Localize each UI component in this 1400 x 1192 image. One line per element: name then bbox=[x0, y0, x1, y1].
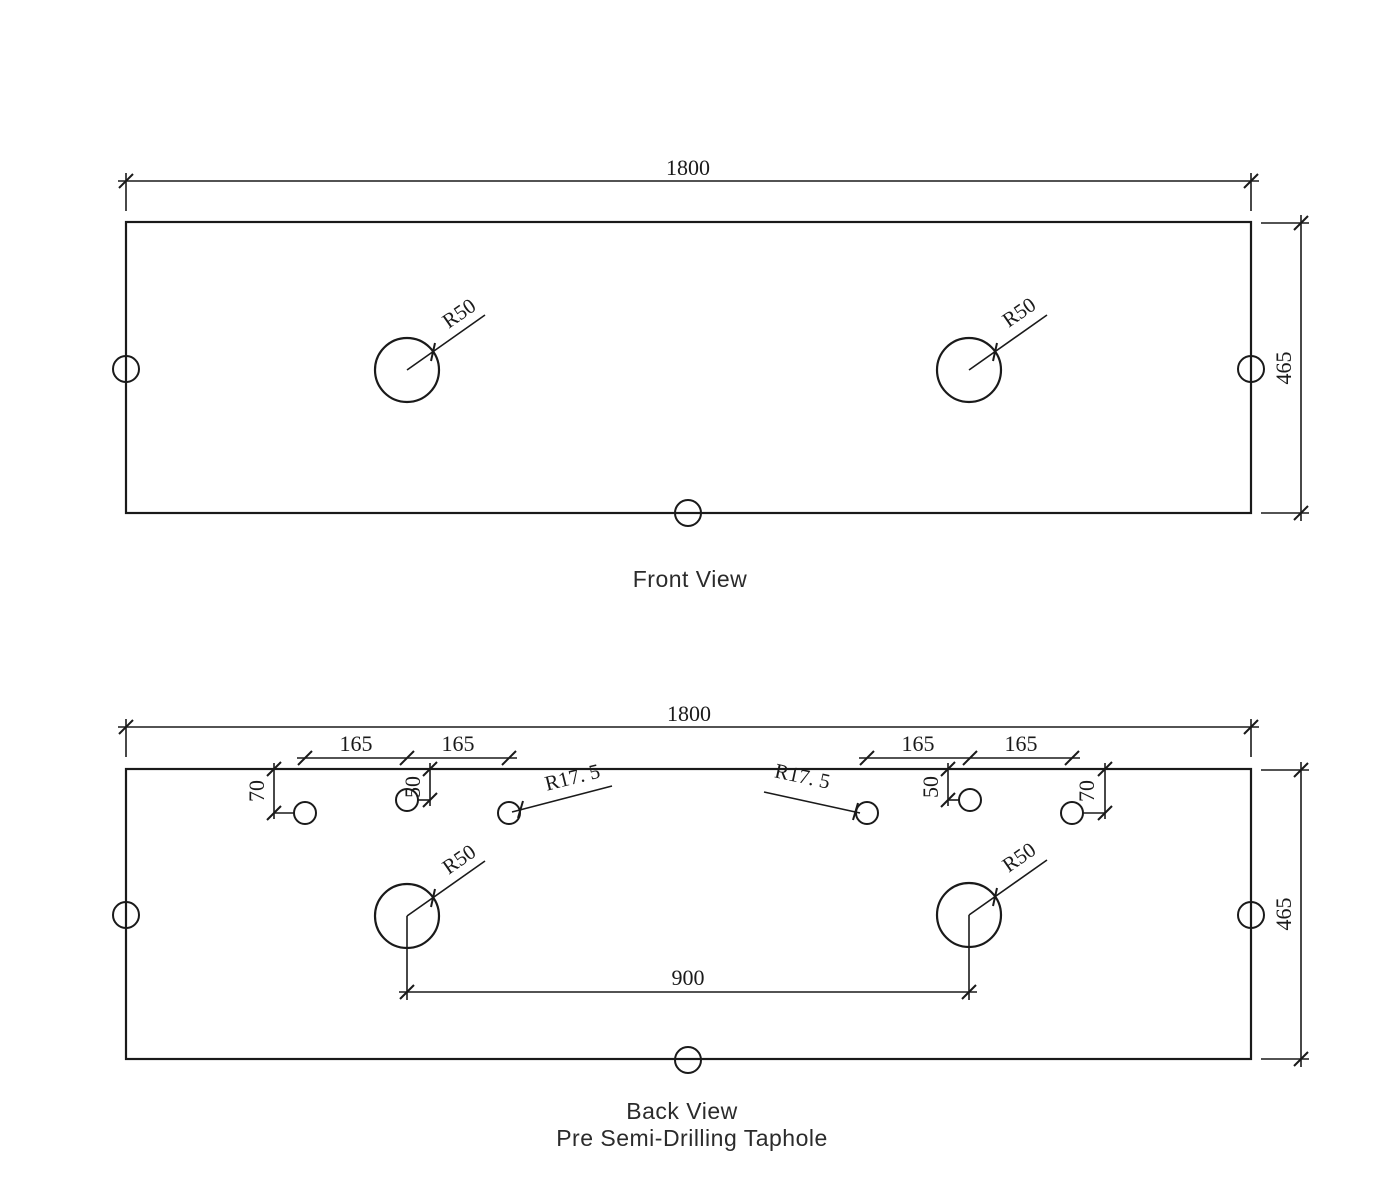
taphole-spacing-label-b: 165 bbox=[442, 731, 475, 756]
back-spacing-dimension: 900 bbox=[399, 915, 977, 1000]
taphole-spacing-label-a: 165 bbox=[902, 731, 935, 756]
back-right-radius-callout: R50 bbox=[969, 837, 1047, 915]
taphole-depth-50-label: 50 bbox=[918, 776, 943, 798]
back-left-radius-callout: R50 bbox=[407, 839, 485, 916]
taphole-depth-70-dimension: 70 bbox=[244, 762, 294, 820]
front-view-title: Front View bbox=[633, 566, 748, 592]
front-width-dimension: 1800 bbox=[118, 155, 1259, 211]
taphole-spacing-dimension: 165 165 bbox=[297, 731, 517, 765]
front-left-radius-callout: R50 bbox=[407, 293, 485, 370]
technical-drawing-canvas: 1800 465 R50 bbox=[0, 0, 1400, 1192]
back-left-radius-label: R50 bbox=[438, 839, 480, 879]
front-height-dimension: 465 bbox=[1261, 215, 1309, 521]
taphole-depth-70-label: 70 bbox=[244, 780, 269, 802]
taphole-depth-70-label: 70 bbox=[1074, 780, 1099, 802]
taphole-spacing-dimension: 165 165 bbox=[859, 731, 1080, 765]
back-view-title: Back View bbox=[626, 1098, 737, 1124]
taphole-spacing-label-a: 165 bbox=[340, 731, 373, 756]
front-edge-marks bbox=[113, 356, 1264, 526]
back-width-label: 1800 bbox=[667, 701, 711, 726]
taphole bbox=[498, 802, 520, 824]
taphole bbox=[1061, 802, 1083, 824]
back-width-dimension: 1800 bbox=[118, 701, 1259, 757]
back-height-dimension: 465 bbox=[1261, 762, 1309, 1067]
front-main-holes bbox=[375, 338, 1001, 402]
back-spacing-label: 900 bbox=[672, 965, 705, 990]
front-left-radius-label: R50 bbox=[438, 293, 480, 333]
taphole-radius-callout: R17. 5 bbox=[764, 759, 860, 820]
back-main-holes bbox=[375, 883, 1001, 948]
taphole bbox=[294, 802, 316, 824]
drawing-sheet: 1800 465 R50 bbox=[0, 0, 1400, 1192]
taphole-spacing-label-b: 165 bbox=[1005, 731, 1038, 756]
front-right-radius-callout: R50 bbox=[969, 292, 1047, 370]
back-right-taphole-group: 165 165 50 70 bbox=[764, 731, 1112, 824]
front-panel-outline bbox=[126, 222, 1251, 513]
taphole bbox=[959, 789, 981, 811]
back-height-label: 465 bbox=[1271, 898, 1296, 931]
front-view: 1800 465 R50 bbox=[113, 155, 1309, 592]
taphole-radius-label: R17. 5 bbox=[773, 759, 833, 794]
back-right-radius-label: R50 bbox=[998, 837, 1040, 877]
back-view-subtitle: Pre Semi-Drilling Taphole bbox=[556, 1125, 828, 1151]
back-left-taphole-group: 165 165 70 50 bbox=[244, 731, 612, 824]
front-right-radius-label: R50 bbox=[998, 292, 1040, 332]
taphole-depth-50-label: 50 bbox=[400, 776, 425, 798]
front-height-label: 465 bbox=[1271, 352, 1296, 385]
taphole-depth-70-dimension: 70 bbox=[1074, 762, 1112, 820]
taphole-radius-callout: R17. 5 bbox=[512, 759, 612, 818]
front-width-label: 1800 bbox=[666, 155, 710, 180]
back-view: 1800 465 R50 bbox=[113, 701, 1309, 1151]
